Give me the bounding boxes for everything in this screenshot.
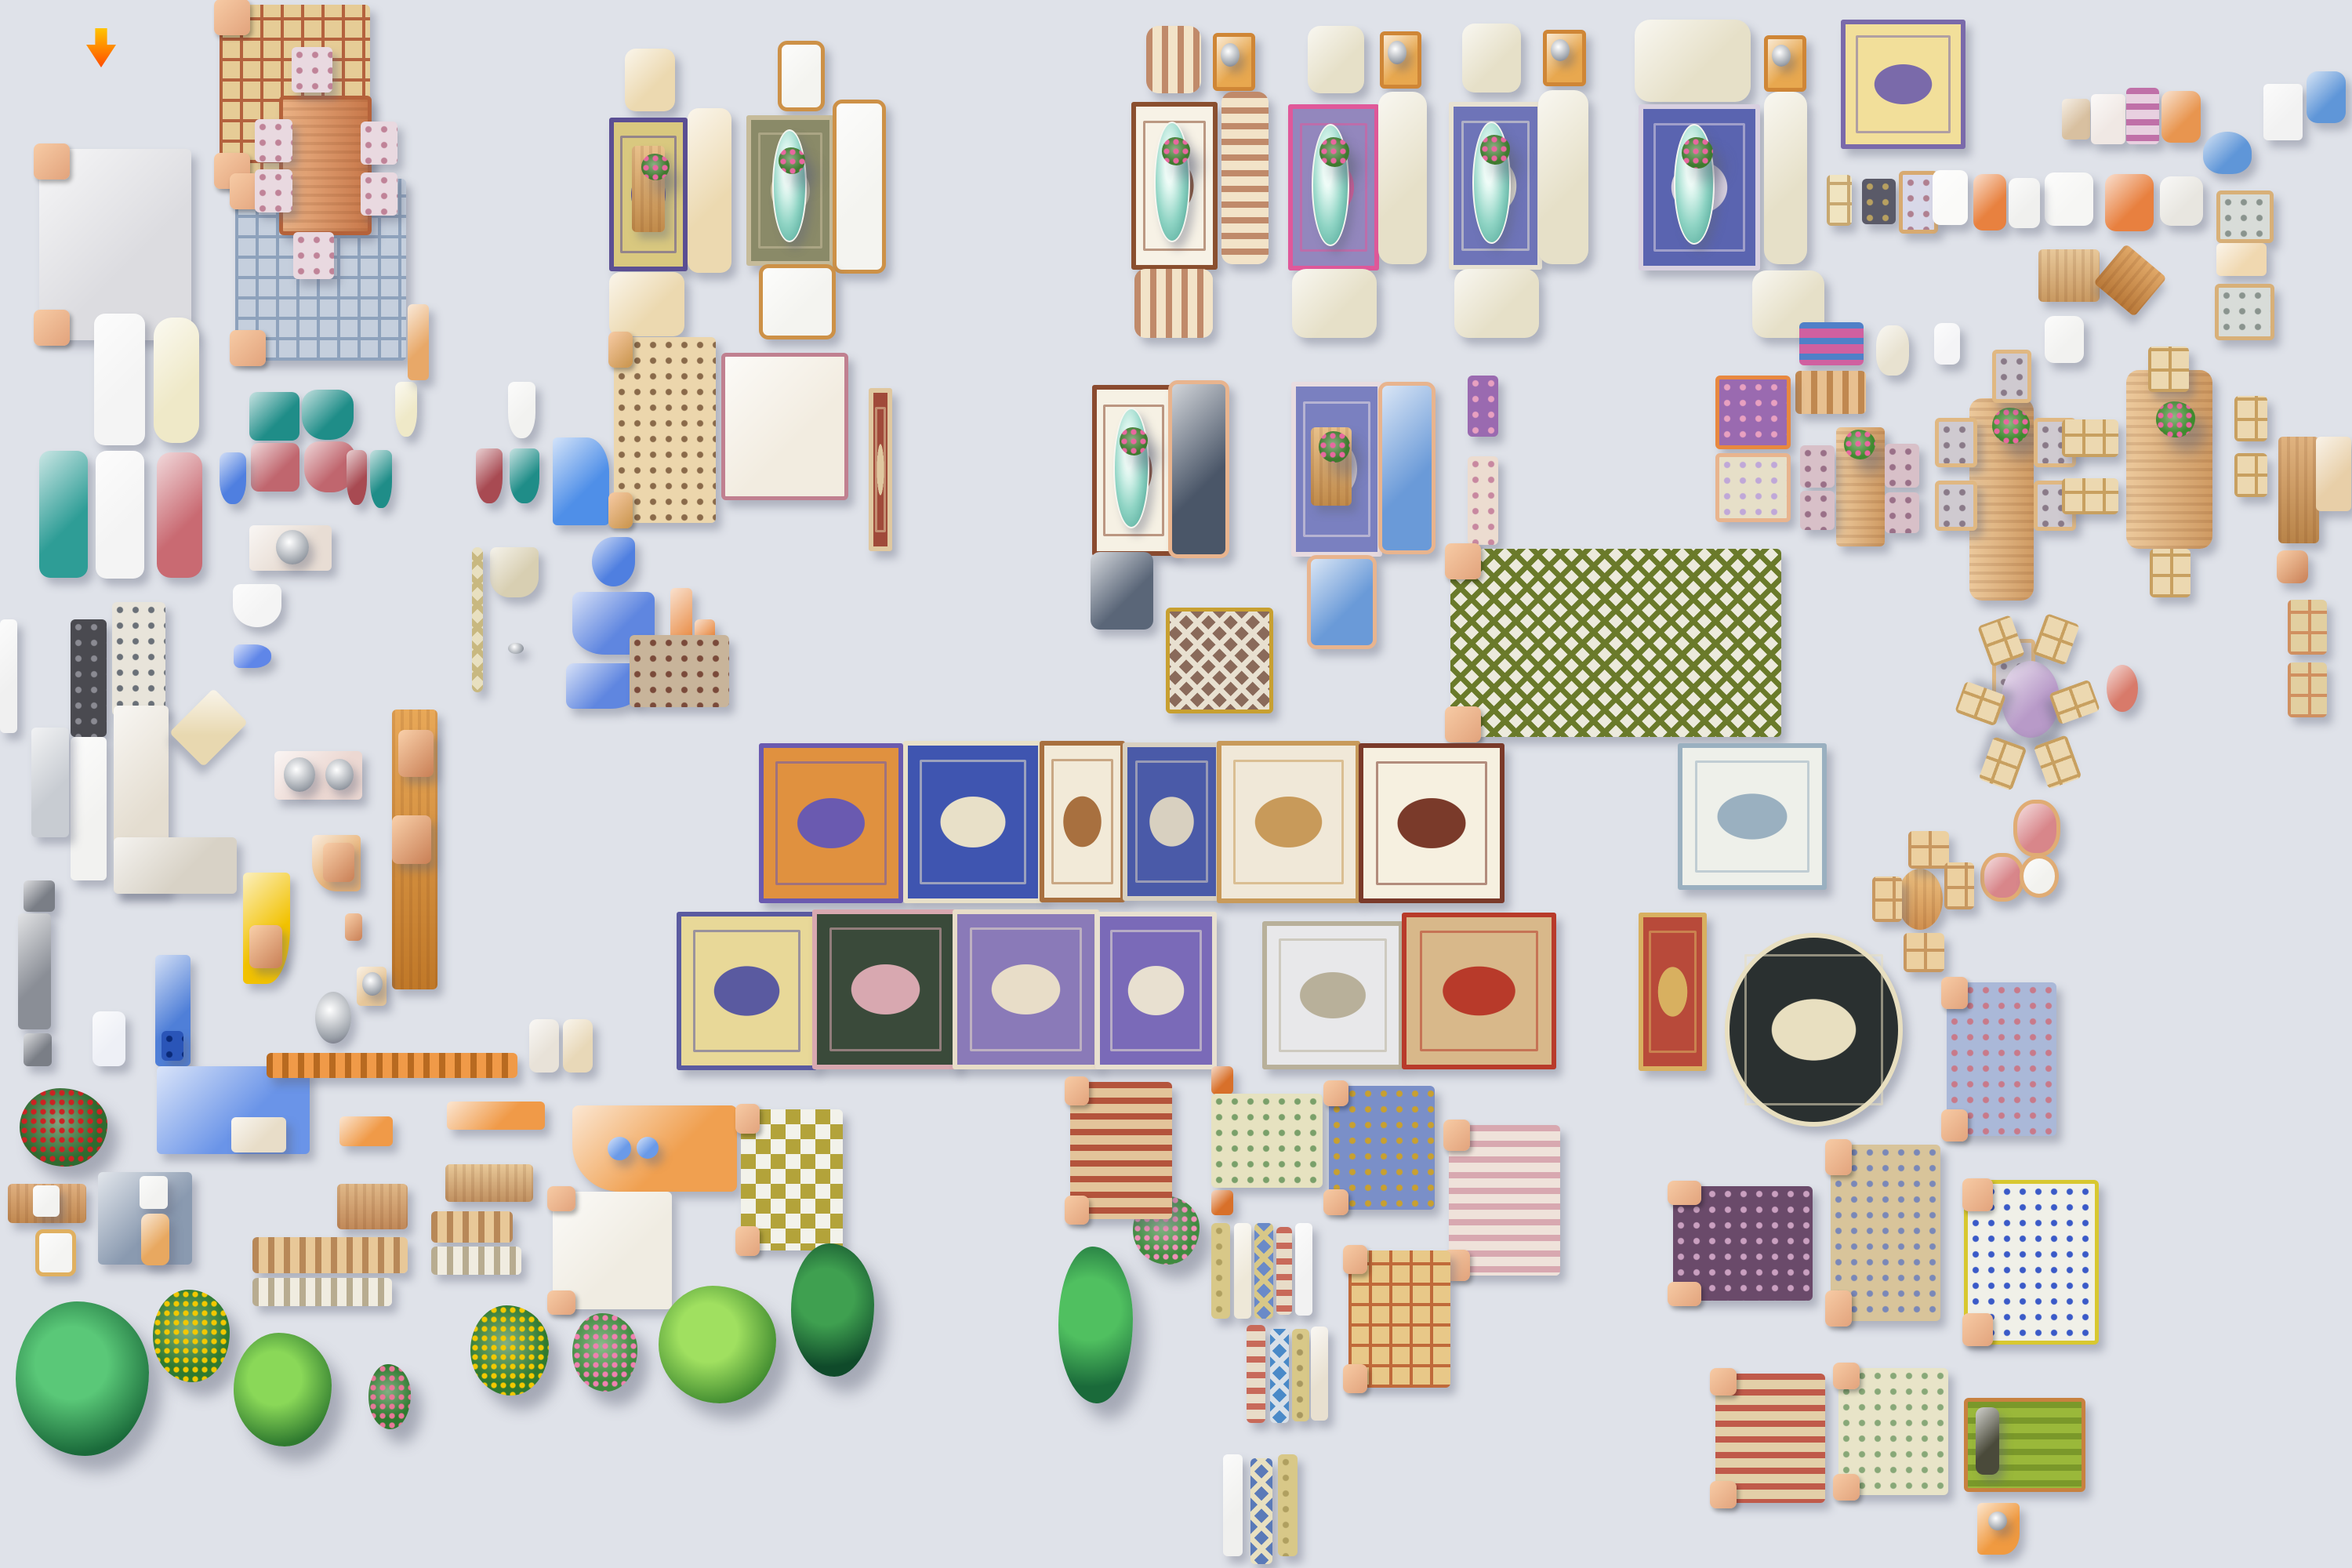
sofa-cream-leather[interactable] xyxy=(1378,92,1427,264)
plant-green-bush[interactable] xyxy=(659,1286,776,1403)
flowers-centerpiece[interactable] xyxy=(2156,401,2195,437)
fabric-swatch[interactable] xyxy=(1254,1223,1273,1319)
cutting-board[interactable] xyxy=(169,688,248,767)
monitor-white-icon[interactable] xyxy=(140,1176,168,1209)
dining-chair-mauve[interactable] xyxy=(1800,445,1835,488)
fabric-swatch[interactable] xyxy=(1276,1227,1292,1315)
tub-pink[interactable] xyxy=(157,452,202,578)
sink-corner-blue[interactable] xyxy=(592,537,635,586)
chair-pink-oval[interactable] xyxy=(2013,800,2060,857)
table-wood-small[interactable] xyxy=(2038,249,2100,302)
stool-blue-round[interactable] xyxy=(608,1137,631,1160)
rug-roll-ikat[interactable] xyxy=(1468,456,1498,545)
plank-wood[interactable] xyxy=(445,1164,533,1202)
plank-ruler-wood[interactable] xyxy=(252,1237,408,1273)
chair-cane-right[interactable] xyxy=(2288,662,2327,717)
rug-purple-medallion[interactable] xyxy=(1095,912,1217,1069)
dining-chair-mauve[interactable] xyxy=(1885,444,1919,488)
dining-chair-pink[interactable] xyxy=(255,119,292,162)
shelf-orange[interactable] xyxy=(447,1102,545,1130)
towel-coil[interactable] xyxy=(472,547,483,692)
fridge-white-small[interactable] xyxy=(2263,84,2303,140)
hood-copper[interactable] xyxy=(249,925,282,968)
bed-ethnic-diamond[interactable] xyxy=(614,337,716,523)
armchair-tan[interactable] xyxy=(625,49,675,111)
bowl-metal[interactable] xyxy=(1388,41,1406,64)
sink-teal-square[interactable] xyxy=(249,392,299,441)
duvet-green-scroll[interactable] xyxy=(1211,1094,1323,1188)
fabric-swatch[interactable] xyxy=(1278,1454,1298,1556)
dining-chair-mauve[interactable] xyxy=(1885,492,1919,533)
dining-chair-mauve[interactable] xyxy=(1800,491,1835,530)
plant-yellow-mums[interactable] xyxy=(153,1290,230,1382)
bed-white-duvet[interactable] xyxy=(553,1192,672,1309)
plank-ruler-white[interactable] xyxy=(431,1247,521,1275)
mirror-round-icon[interactable] xyxy=(276,530,309,564)
toilet-teal[interactable] xyxy=(370,450,392,508)
dining-chair-pink[interactable] xyxy=(255,169,292,212)
sofa-cream-leather[interactable] xyxy=(1764,92,1807,264)
sink-round-steel[interactable] xyxy=(284,757,315,792)
cabinet-white-column[interactable] xyxy=(71,737,107,880)
copper-chip[interactable] xyxy=(345,913,362,941)
chair-white-desk[interactable] xyxy=(35,1229,76,1276)
shelf-white-small[interactable] xyxy=(0,619,17,733)
fabric-swatch[interactable] xyxy=(1270,1329,1289,1423)
chair-wicker[interactable] xyxy=(1827,175,1852,226)
dining-chair-cane[interactable] xyxy=(2062,419,2118,457)
sink-inset-beige[interactable] xyxy=(231,1117,286,1152)
cooktop-gas-unit[interactable] xyxy=(112,602,165,716)
mat-brown-pattern[interactable] xyxy=(630,635,729,707)
bin-gray[interactable] xyxy=(24,880,55,912)
sofa-white-wood[interactable] xyxy=(833,100,886,274)
dining-chair-cane[interactable] xyxy=(2062,478,2118,514)
chair-white-small[interactable] xyxy=(2045,316,2084,363)
bed-yellow-blue-ornate[interactable] xyxy=(1964,1180,2099,1345)
loveseat-tan[interactable] xyxy=(609,272,684,336)
vanity-blue-pentagon[interactable] xyxy=(566,663,640,709)
nightstand-plate[interactable] xyxy=(1211,1190,1233,1215)
toilet-red[interactable] xyxy=(347,450,367,505)
rug-chinese-white[interactable] xyxy=(1262,921,1403,1069)
pedestal-sink-white[interactable] xyxy=(233,584,281,627)
bench-wood-slats[interactable] xyxy=(1795,371,1866,414)
rug-cream-brown-border[interactable] xyxy=(1040,741,1125,902)
rug-runner-red[interactable] xyxy=(1639,913,1707,1071)
dining-chair-wood[interactable] xyxy=(1908,831,1949,869)
bowl-metal[interactable] xyxy=(1551,39,1570,61)
chair-pink-oval[interactable] xyxy=(1980,853,2024,902)
dining-chair-wood[interactable] xyxy=(1944,862,1974,909)
hood-copper[interactable] xyxy=(392,815,431,864)
sink-stainless-double[interactable] xyxy=(31,728,69,837)
armchair-white-small[interactable] xyxy=(2045,172,2093,226)
loveseat-cream-leather[interactable] xyxy=(1454,269,1539,338)
sofa-tan[interactable] xyxy=(688,108,731,273)
stool-tan[interactable] xyxy=(2216,243,2267,276)
hood-copper[interactable] xyxy=(323,843,354,882)
sofa-blue-leather[interactable] xyxy=(1378,382,1436,554)
rug-scalloped-cream[interactable] xyxy=(1217,741,1360,903)
chair-cane-round[interactable] xyxy=(2032,613,2080,666)
pouf-red-stack[interactable] xyxy=(2107,665,2138,712)
hood-copper[interactable] xyxy=(398,730,434,777)
dining-table-rect[interactable] xyxy=(279,96,372,235)
flowers-centerpiece[interactable] xyxy=(641,154,670,180)
sofa-cream-wide[interactable] xyxy=(1635,20,1751,102)
plank-ruler-wood[interactable] xyxy=(431,1211,513,1243)
faucet-chrome[interactable] xyxy=(508,643,524,654)
cushion-striped-stack[interactable] xyxy=(2126,88,2159,144)
rug-pale-blue[interactable] xyxy=(1678,743,1827,890)
dining-chair-gray[interactable] xyxy=(1935,418,1977,467)
bed-green-scroll[interactable] xyxy=(1838,1368,1948,1495)
rug-abstract-tan-blue[interactable] xyxy=(677,912,817,1070)
chair-orange[interactable] xyxy=(1973,174,2006,230)
box-white[interactable] xyxy=(93,1011,125,1066)
table-oval-wood[interactable] xyxy=(1897,869,1943,930)
flowers-centerpiece[interactable] xyxy=(779,147,805,174)
stool-blue-round[interactable] xyxy=(637,1137,659,1159)
chair-white-acrylic[interactable] xyxy=(1934,323,1960,365)
dining-chair-gray[interactable] xyxy=(1935,481,1977,531)
bin-gray[interactable] xyxy=(24,1033,52,1066)
chair-orange-tall[interactable] xyxy=(2161,91,2201,143)
stove-dark[interactable] xyxy=(71,619,107,737)
dining-chair-pink[interactable] xyxy=(293,232,334,279)
pillow-dark[interactable] xyxy=(1976,1407,1999,1475)
rug-roll-floral[interactable] xyxy=(1468,376,1498,437)
dining-chair-cane[interactable] xyxy=(2150,549,2190,597)
glass-table-oval[interactable] xyxy=(772,129,807,242)
bidet-blue-small[interactable] xyxy=(234,644,271,668)
plank-ruler-white[interactable] xyxy=(252,1278,392,1306)
lounger-recliner[interactable] xyxy=(529,1019,559,1073)
loveseat-cream-leather[interactable] xyxy=(1292,269,1377,338)
chair-orange-desk[interactable] xyxy=(141,1214,169,1265)
plant-palm[interactable] xyxy=(1058,1247,1133,1403)
dining-chair-pink[interactable] xyxy=(292,47,332,93)
chair-tan-edge[interactable] xyxy=(2316,437,2351,511)
sink-teal-round[interactable] xyxy=(302,390,354,440)
chair-wood-rotated[interactable] xyxy=(2093,244,2167,318)
sofa-navy-leather[interactable] xyxy=(1168,380,1229,558)
sofa-striped[interactable] xyxy=(1221,92,1269,264)
bowl-metal[interactable] xyxy=(1772,45,1791,67)
fabric-swatch[interactable] xyxy=(1247,1325,1265,1423)
armchair-glass-white[interactable] xyxy=(1933,170,1968,225)
chair-dark-floral[interactable] xyxy=(1862,179,1896,224)
fabric-swatch[interactable] xyxy=(1311,1327,1328,1421)
sink-pink-square[interactable] xyxy=(251,443,299,492)
bed-paisley-rose[interactable] xyxy=(1673,1186,1813,1301)
plant-fern-palm[interactable] xyxy=(16,1301,149,1456)
toilet-teal[interactable] xyxy=(510,448,539,503)
chair-cane-round[interactable] xyxy=(1978,736,2027,791)
wall-sink-beige[interactable] xyxy=(490,547,539,597)
chair-blue-round[interactable] xyxy=(2203,132,2252,174)
bed-blue-gold[interactable] xyxy=(1329,1086,1435,1210)
monitor-white-icon[interactable] xyxy=(33,1185,60,1217)
armchair-striped[interactable] xyxy=(1146,26,1201,93)
rug-green-floral[interactable] xyxy=(812,909,959,1069)
bed-lavender-pillows[interactable] xyxy=(1715,453,1791,522)
rug-runner-narrow[interactable] xyxy=(869,388,892,551)
dining-table-long[interactable] xyxy=(2126,370,2212,549)
plank-orange-marks[interactable] xyxy=(267,1053,517,1078)
toilet-white[interactable] xyxy=(508,382,535,438)
fabric-swatch[interactable] xyxy=(1292,1329,1309,1421)
bed-tan-blue-ornate[interactable] xyxy=(1831,1145,1940,1321)
chair-silver[interactable] xyxy=(2160,176,2203,226)
knob-metal[interactable] xyxy=(1988,1512,2007,1530)
cabinet-gray-tall[interactable] xyxy=(18,913,51,1029)
rug-medallion-maroon[interactable] xyxy=(1359,743,1504,903)
bed-striped[interactable] xyxy=(1070,1082,1172,1219)
plant-yellow-mums[interactable] xyxy=(470,1305,549,1396)
bed-teddy-plaid[interactable] xyxy=(1348,1250,1450,1388)
furniture-sprite-canvas xyxy=(0,0,2352,1568)
bed-striped-red[interactable] xyxy=(1715,1374,1825,1503)
fan-round[interactable] xyxy=(315,992,351,1044)
chair-blue-corner[interactable] xyxy=(2307,71,2346,123)
tub-cream[interactable] xyxy=(154,318,199,443)
tub-white[interactable] xyxy=(94,314,145,445)
chair-gray-pattern[interactable] xyxy=(2215,284,2274,340)
dining-chair-cane[interactable] xyxy=(2234,453,2267,497)
plant-pink-flowers[interactable] xyxy=(572,1313,637,1392)
dresser-orange-tall[interactable] xyxy=(408,304,429,380)
rug-round-black[interactable] xyxy=(1725,933,1903,1127)
bed-pink-stripe[interactable] xyxy=(1449,1125,1560,1276)
dining-chair-cane[interactable] xyxy=(2148,347,2189,392)
toilet-red[interactable] xyxy=(476,448,503,503)
flowers-centerpiece[interactable] xyxy=(1120,427,1148,456)
stool-small-tan[interactable] xyxy=(2062,99,2090,140)
armchair-cream-leather[interactable] xyxy=(1308,26,1364,93)
sink-round-steel[interactable] xyxy=(325,759,354,790)
dining-chair-cane[interactable] xyxy=(2234,396,2267,441)
plant-green-leafy[interactable] xyxy=(234,1333,332,1446)
bed-white-silver[interactable] xyxy=(39,149,191,340)
tray-white-oval[interactable] xyxy=(2020,855,2059,898)
rug-blue-garland-small[interactable] xyxy=(1123,742,1221,901)
dining-chair-wood[interactable] xyxy=(1904,933,1944,972)
rug-elephant[interactable] xyxy=(759,743,903,903)
fabric-swatch[interactable] xyxy=(1250,1458,1272,1564)
armchair-cream-leather[interactable] xyxy=(1462,24,1521,93)
rug-blue-medallion[interactable] xyxy=(903,741,1043,903)
fan-blade-icon[interactable] xyxy=(362,972,383,996)
dining-chair-pink[interactable] xyxy=(361,122,397,165)
burner-icon[interactable] xyxy=(162,1031,183,1061)
stool-copper-cube[interactable] xyxy=(2277,550,2308,583)
dining-chair-wood[interactable] xyxy=(1872,877,1902,922)
office-chair-cream[interactable] xyxy=(1876,325,1909,376)
chair-gray-pattern[interactable] xyxy=(2216,191,2274,243)
loveseat-gray[interactable] xyxy=(1091,552,1153,630)
toilet-blue[interactable] xyxy=(220,452,246,504)
loveseat-blue-leather[interactable] xyxy=(1307,555,1377,649)
sofa-cream-leather[interactable] xyxy=(1538,90,1588,264)
dining-chair-pink[interactable] xyxy=(361,172,397,216)
rug-persian-red-tan[interactable] xyxy=(1402,913,1556,1069)
bowl-metal[interactable] xyxy=(1221,43,1240,67)
fabric-swatch[interactable] xyxy=(1234,1223,1251,1319)
nightstand-plate[interactable] xyxy=(1211,1066,1233,1094)
bench-pink-small[interactable] xyxy=(2091,94,2125,144)
armchair-orange[interactable] xyxy=(2105,174,2154,231)
flowers-centerpiece[interactable] xyxy=(1992,408,2030,444)
dining-chair-gray[interactable] xyxy=(1992,350,2031,403)
wardrobe-tan[interactable] xyxy=(2278,437,2319,543)
bed-checkered-gold[interactable] xyxy=(741,1109,843,1250)
lounger-recliner[interactable] xyxy=(563,1019,593,1073)
plant-pink-mums[interactable] xyxy=(368,1364,411,1429)
chair-white-gray[interactable] xyxy=(2009,178,2040,228)
flowers-centerpiece[interactable] xyxy=(1319,137,1349,167)
shelf-orange[interactable] xyxy=(339,1116,393,1146)
flowers-centerpiece[interactable] xyxy=(1162,137,1190,165)
flowers-centerpiece[interactable] xyxy=(1844,430,1875,459)
flowers-centerpiece[interactable] xyxy=(1480,135,1510,165)
chair-cane-round[interactable] xyxy=(2033,735,2082,789)
bed-green-diamond-wide[interactable] xyxy=(1450,549,1781,737)
rug-yellow-square[interactable] xyxy=(1841,20,1965,149)
arrow-marker-icon[interactable] xyxy=(86,28,116,67)
chair-cane-right[interactable] xyxy=(2288,600,2327,655)
tub-teal[interactable] xyxy=(39,451,88,578)
counter-foot-beige[interactable] xyxy=(114,837,237,894)
fabric-swatch[interactable] xyxy=(1223,1454,1243,1556)
bed-white-duvet[interactable] xyxy=(721,353,848,500)
bed-blue-roses[interactable] xyxy=(1947,982,2056,1136)
roses-red-bouquet[interactable] xyxy=(20,1088,107,1167)
loveseat-white-wood[interactable] xyxy=(759,264,836,339)
flowers-centerpiece[interactable] xyxy=(1682,137,1713,169)
bed-floral-purple[interactable] xyxy=(1715,376,1791,449)
rug-brown-diamond[interactable] xyxy=(1166,608,1273,713)
glass-table-oval[interactable] xyxy=(1113,408,1149,528)
ottoman-striped[interactable] xyxy=(1799,322,1864,365)
loveseat-striped[interactable] xyxy=(1134,269,1213,338)
shelf-wood[interactable] xyxy=(337,1184,408,1229)
shower-corner-blue[interactable] xyxy=(553,437,609,525)
toilet-cream[interactable] xyxy=(395,382,417,437)
rug-purple-cream-floral[interactable] xyxy=(953,909,1099,1069)
fabric-swatch[interactable] xyxy=(1295,1223,1312,1316)
tub-white[interactable] xyxy=(96,451,144,579)
flowers-centerpiece[interactable] xyxy=(1319,431,1350,463)
plant-dark-palm[interactable] xyxy=(791,1243,874,1377)
armchair-white-wood[interactable] xyxy=(778,41,825,111)
fabric-swatch[interactable] xyxy=(1211,1223,1230,1319)
